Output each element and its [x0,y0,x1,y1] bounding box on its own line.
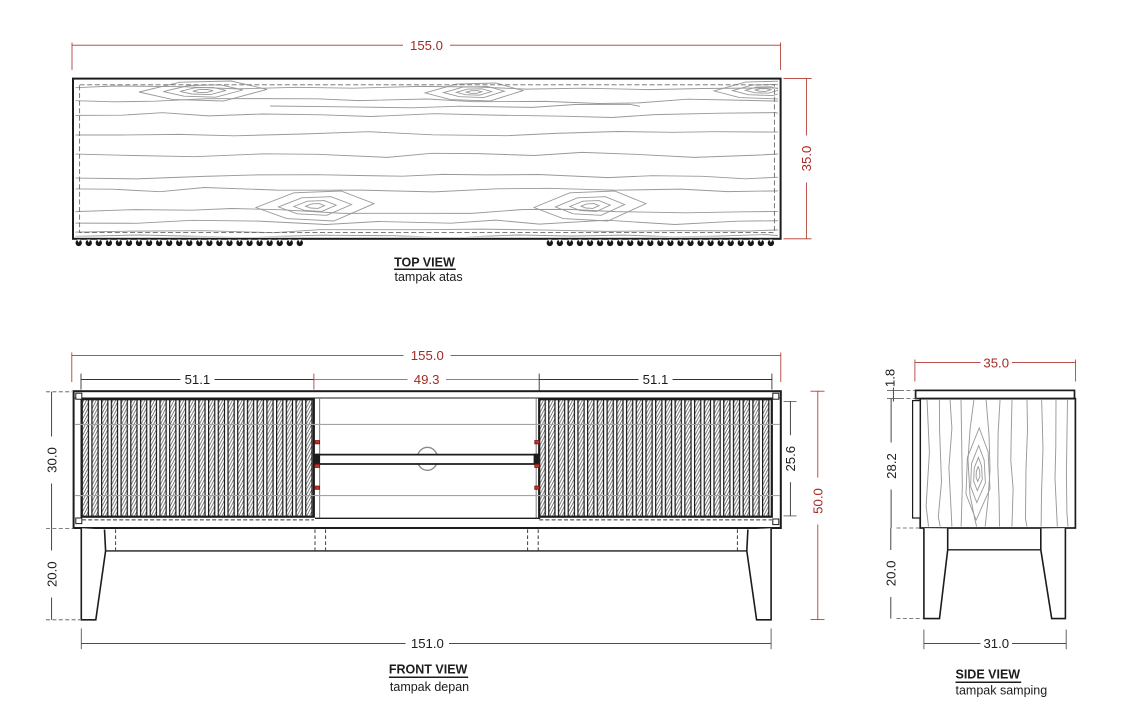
svg-text:30.0: 30.0 [44,447,59,473]
svg-text:50.0: 50.0 [811,488,826,514]
svg-text:tampak depan: tampak depan [390,680,469,694]
svg-text:tampak atas: tampak atas [395,270,463,284]
svg-text:155.0: 155.0 [410,38,443,53]
svg-text:51.1: 51.1 [185,372,211,387]
svg-text:SIDE VIEW: SIDE VIEW [956,668,1021,682]
svg-text:35.0: 35.0 [799,146,814,172]
svg-text:25.6: 25.6 [783,446,798,472]
svg-text:151.0: 151.0 [411,636,444,651]
svg-text:TOP VIEW: TOP VIEW [394,256,455,270]
svg-text:FRONT VIEW: FRONT VIEW [389,662,468,676]
svg-text:28.2: 28.2 [884,453,899,479]
svg-text:51.1: 51.1 [643,372,669,387]
svg-text:155.0: 155.0 [411,348,444,363]
svg-text:20.0: 20.0 [884,561,899,587]
svg-text:31.0: 31.0 [983,636,1009,651]
svg-text:tampak samping: tampak samping [956,683,1048,697]
svg-text:1.8: 1.8 [882,369,897,387]
svg-text:35.0: 35.0 [983,355,1009,370]
svg-text:20.0: 20.0 [44,561,59,587]
svg-text:49.3: 49.3 [414,372,440,387]
